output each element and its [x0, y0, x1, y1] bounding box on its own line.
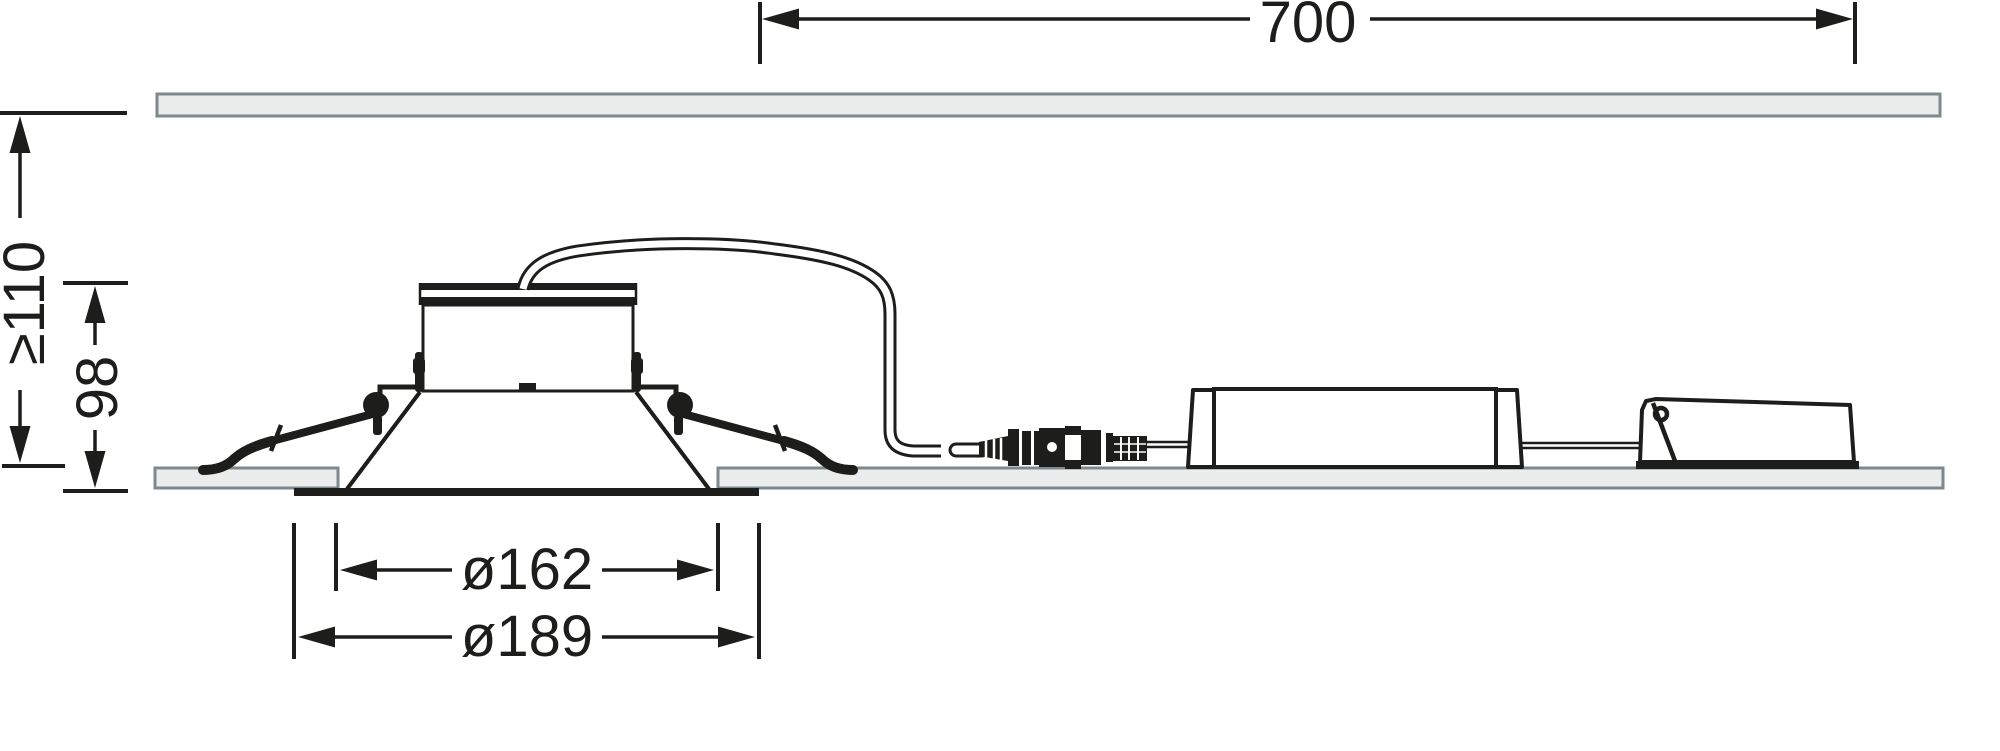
plug-ring [1034, 431, 1039, 465]
drawing-canvas: 700 ≥110 98 ø162 ø189 [0, 0, 2000, 751]
wire-to-terminal-box [1522, 443, 1640, 448]
luminaire-body [423, 305, 633, 391]
driver-body [1214, 389, 1496, 467]
ceiling-panel-left [155, 468, 338, 488]
clip-foot [784, 441, 853, 470]
clip-bracket [635, 387, 676, 397]
spring-clip-right [631, 352, 853, 470]
body-bottom-tab [519, 383, 536, 391]
clip-pin-bulge [413, 358, 425, 374]
dimension-d162: ø162 [336, 523, 718, 602]
ceiling-panel-right [718, 468, 1943, 488]
dimension-label-d189: ø189 [461, 604, 593, 669]
trim-flange [294, 488, 759, 496]
dimension-98: 98 [63, 283, 130, 491]
socket-ring [1106, 433, 1113, 462]
coupling-tab-top [1065, 426, 1081, 435]
clip-foot [203, 441, 272, 470]
dimension-700: 700 [760, 0, 1855, 64]
coupling-tab-bottom [1065, 460, 1081, 469]
ceiling-void-top-panel [157, 94, 1940, 116]
driver-end-cap-right [1496, 390, 1522, 467]
led-driver-box [1188, 389, 1522, 467]
spring-clip-left [203, 352, 425, 470]
downlight-luminaire [203, 283, 853, 496]
clip-arm [272, 412, 380, 441]
arrowhead-left [762, 9, 799, 30]
arrowhead-left [298, 627, 335, 648]
arrowhead-right [677, 560, 714, 581]
clip-bracket [380, 387, 421, 397]
driver-end-cap-left [1188, 390, 1214, 467]
clip-pin-bulge [631, 358, 643, 374]
arrowhead-down [85, 451, 106, 488]
dimension-label-700: 700 [1260, 0, 1357, 55]
terminal-box [1636, 399, 1859, 469]
terminal-box-base [1636, 461, 1859, 469]
plug-ring [1008, 429, 1019, 466]
arrowhead-up [85, 286, 106, 323]
clip-pivot-stub [674, 415, 683, 435]
wire-to-driver [1147, 442, 1192, 447]
clip-pivot-stub [373, 415, 382, 435]
dimension-label-min110: ≥110 [0, 241, 57, 365]
arrowhead-right [1816, 9, 1853, 30]
quick-connector [950, 426, 1147, 469]
arrowhead-left [340, 560, 377, 581]
dimension-label-d162: ø162 [461, 537, 593, 602]
plug-ring [1022, 431, 1031, 465]
arrowhead-up [10, 116, 31, 153]
arrowhead-down [10, 426, 31, 463]
socket-body [1081, 430, 1101, 465]
clip-arm [676, 412, 784, 441]
arrowhead-right [718, 627, 755, 648]
dimension-label-98: 98 [65, 356, 130, 421]
plug-latch-hole [1047, 442, 1057, 452]
dimension-drawing: 700 ≥110 98 ø162 ø189 [0, 0, 2000, 751]
